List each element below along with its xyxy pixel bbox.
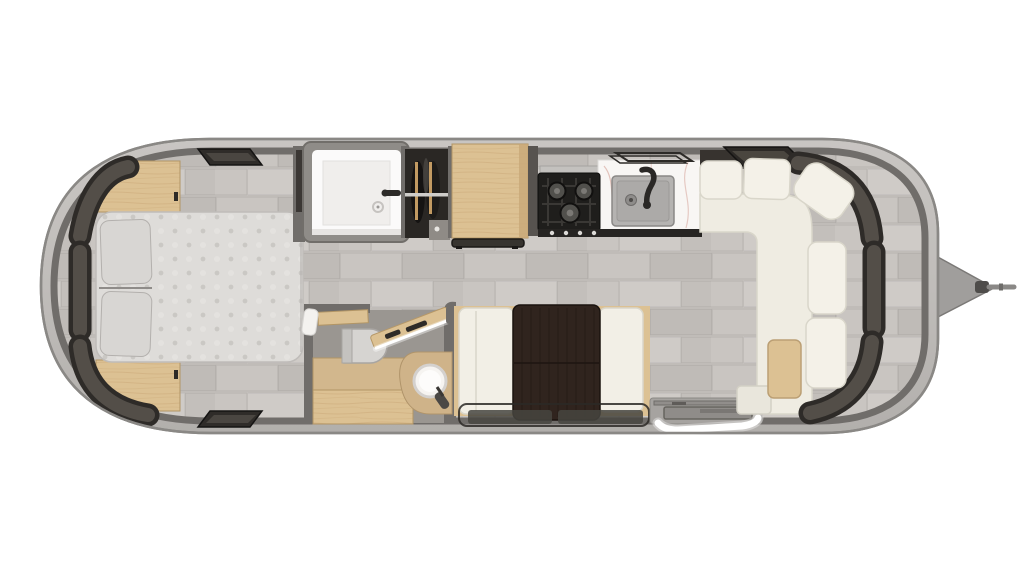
trailer-floor-plan: Travel trailer floor plan, top-down rend… [0,0,1024,576]
bench-left-cushion [459,308,514,414]
back-cushion-2 [743,158,790,200]
coffee-table [768,340,801,398]
rail-foot-left [456,246,462,249]
burner-cap-2 [581,188,587,194]
entry-tread-grip [700,409,740,413]
kitchen-sink-basin [617,181,669,221]
stove-knob-2 [564,231,568,235]
back-cushion-4 [806,318,846,388]
stove-knob-1 [550,231,554,235]
towel [301,308,318,336]
shower-threshold [312,229,401,235]
cabinet-base-rail [452,239,524,247]
pillow-bottom [100,291,152,357]
rail-foot-right [512,246,518,249]
galley-base-strip [538,229,702,237]
shower-floor [323,161,390,225]
burner-cap-1 [554,188,560,194]
bath-step [313,390,413,424]
bathroom [301,302,456,424]
floor-mat-left [468,410,552,424]
back-cushion-3 [808,242,846,314]
cabinet-edge-shade [519,144,528,238]
pillow-top [100,219,152,285]
niche-hardware [435,227,440,232]
entry-latch [672,402,686,405]
shower-drain-center [377,206,380,209]
floor-mat-right [558,410,643,424]
roof-vent-bottom-inset [206,415,256,423]
wood-hanger-2 [429,162,432,214]
galley [538,160,702,237]
back-cushion-1 [700,161,742,199]
sofa-step [737,386,771,414]
toilet-tank [342,329,352,363]
clothes-highlight [423,158,429,194]
closet-rod [405,193,450,197]
burner-cap-3 [567,210,574,217]
closet-niche [429,220,450,240]
hitch-stem-joint [999,284,1003,291]
wet-bath-and-closet [293,142,538,249]
wood-countertop-cabinet [452,144,528,238]
nightstand-bottom-handle [174,370,178,379]
bench-right-cushion [599,308,643,412]
door-header-shelf [318,310,369,326]
wall-divider-cabinet-stove [528,146,538,236]
roof-vent-top-inset [206,153,256,161]
floor-plan-canvas: Travel trailer floor plan, top-down rend… [0,0,1024,576]
dinette [454,305,650,426]
stove-knob-3 [578,231,582,235]
stove-knob-4 [592,231,596,235]
nightstand-top-handle [174,192,178,201]
shower-control-knob [382,190,389,197]
faucet-head [643,201,651,209]
wood-hanger-1 [415,162,418,220]
sink-drain-center [629,198,633,202]
